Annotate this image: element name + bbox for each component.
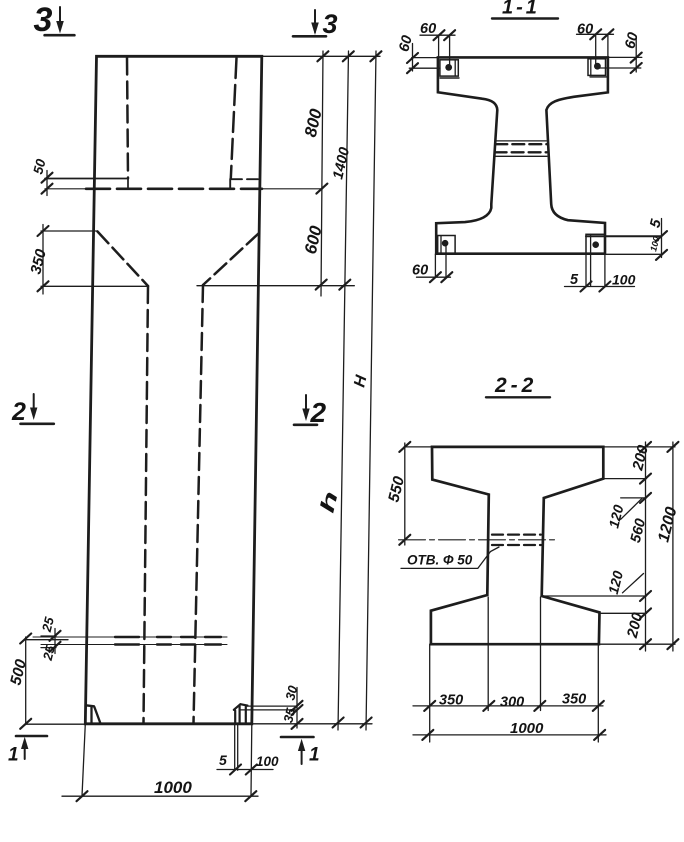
svg-text:1000: 1000 (154, 778, 192, 797)
svg-text:60: 60 (420, 21, 436, 37)
svg-text:5: 5 (219, 752, 227, 768)
svg-text:100: 100 (612, 271, 636, 287)
svg-text:H: H (351, 373, 370, 389)
svg-text:350: 350 (27, 247, 50, 276)
svg-text:3: 3 (323, 9, 338, 39)
svg-text:25: 25 (39, 615, 57, 634)
svg-text:100: 100 (256, 754, 279, 769)
svg-text:35: 35 (280, 706, 298, 724)
svg-text:60: 60 (577, 22, 593, 38)
svg-text:350: 350 (562, 692, 586, 708)
svg-text:500: 500 (7, 657, 30, 687)
svg-text:350: 350 (439, 693, 463, 709)
svg-text:2: 2 (11, 398, 26, 426)
svg-text:100: 100 (648, 235, 661, 252)
svg-text:1: 1 (309, 745, 320, 766)
svg-text:5: 5 (647, 217, 665, 230)
svg-text:1000: 1000 (510, 720, 544, 737)
svg-text:5: 5 (570, 272, 579, 288)
svg-text:2: 2 (310, 397, 327, 428)
svg-text:2-2: 2-2 (494, 374, 537, 397)
svg-text:1-1: 1-1 (502, 0, 540, 19)
svg-text:200: 200 (624, 610, 647, 640)
svg-text:1200: 1200 (655, 505, 680, 544)
svg-text:60: 60 (412, 263, 428, 279)
svg-text:60: 60 (622, 31, 641, 51)
svg-text:50: 50 (30, 157, 48, 176)
svg-text:300: 300 (500, 695, 524, 711)
svg-text:120: 120 (605, 503, 626, 530)
svg-text:1: 1 (8, 745, 19, 766)
svg-text:600: 600 (301, 223, 326, 255)
svg-text:1400: 1400 (330, 146, 353, 181)
svg-text:30: 30 (282, 683, 300, 701)
svg-text:3: 3 (34, 1, 53, 39)
svg-text:h: h (316, 489, 343, 515)
svg-text:ОТВ. Ф 50: ОТВ. Ф 50 (407, 553, 473, 568)
